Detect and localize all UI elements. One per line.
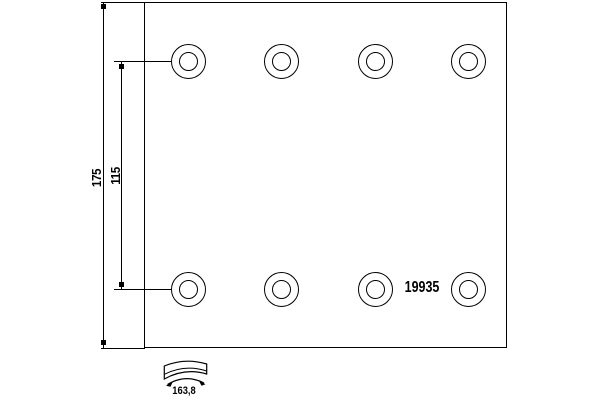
rivet-hole [451, 44, 486, 79]
rivet-hole-bore [272, 52, 291, 71]
rivet-hole [358, 272, 393, 307]
rivet-hole-bore [366, 280, 385, 299]
rivet-hole [171, 44, 206, 79]
rivet-hole [451, 272, 486, 307]
rivet-hole-bore [179, 280, 198, 299]
extension-line-hole-row-bottom [114, 289, 172, 290]
curvature-dimension-arc [168, 379, 205, 385]
rivet-hole-bore [366, 52, 385, 71]
dimension-terminator [101, 340, 106, 345]
rivet-hole-bore [459, 280, 478, 299]
dimension-label-total-height: 175 [90, 160, 104, 196]
technical-drawing-canvas: 175 115 19935 163,8 [0, 0, 600, 400]
part-number-label: 19935 [403, 279, 442, 296]
rivet-hole-bore [459, 52, 478, 71]
extension-line-hole-row-top [114, 61, 172, 62]
extension-line-top [101, 2, 145, 3]
dimension-terminator [101, 4, 106, 9]
curved-band-midline [164, 368, 206, 374]
extension-line-bottom [101, 348, 145, 349]
rivet-hole-bore [272, 280, 291, 299]
rivet-hole-bore [179, 52, 198, 71]
dimension-label-hole-spacing: 115 [109, 158, 123, 194]
dimension-terminator [119, 64, 124, 69]
rivet-hole [358, 44, 393, 79]
rivet-hole [171, 272, 206, 307]
dimension-label-arc-width: 163,8 [166, 385, 202, 398]
curved-band-outline [164, 361, 206, 379]
dimension-terminator [119, 282, 124, 287]
